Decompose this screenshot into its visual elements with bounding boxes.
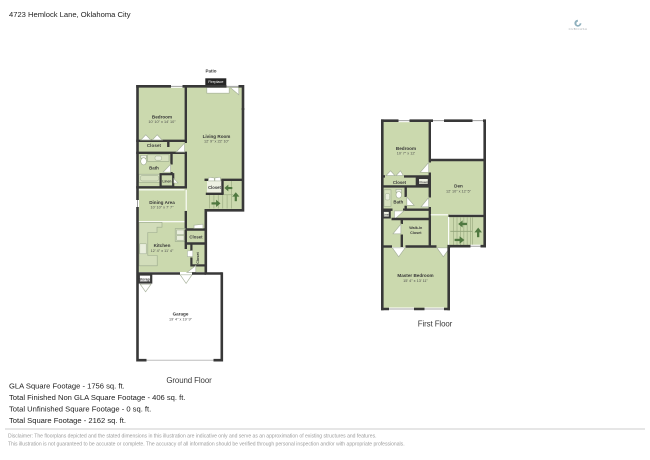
svg-text:Total Finished Non GLA Square: Total Finished Non GLA Square Footage - … bbox=[9, 393, 185, 402]
svg-text:Closet: Closet bbox=[196, 251, 200, 263]
svg-text:Bedroom: Bedroom bbox=[396, 146, 416, 151]
svg-text:Kitchen: Kitchen bbox=[154, 243, 171, 248]
svg-text:Bath: Bath bbox=[149, 166, 159, 171]
svg-text:Disclaimer: The floorplans dep: Disclaimer: The floorplans depicted and … bbox=[8, 434, 377, 440]
svg-text:10' 7" x 12': 10' 7" x 12' bbox=[397, 152, 416, 156]
svg-text:Total Unfinished Square Footag: Total Unfinished Square Footage - 0 sq. … bbox=[9, 405, 151, 414]
svg-text:Bedroom: Bedroom bbox=[152, 114, 172, 119]
svg-text:Living Room: Living Room bbox=[203, 134, 231, 139]
svg-text:Master Bedroom: Master Bedroom bbox=[397, 273, 433, 278]
svg-text:Storage: Storage bbox=[139, 278, 151, 282]
svg-text:Closet: Closet bbox=[147, 143, 162, 148]
svg-text:Den: Den bbox=[454, 184, 463, 189]
svg-text:10' 10" x 7' 7": 10' 10" x 7' 7" bbox=[151, 206, 175, 210]
svg-text:Closet: Closet bbox=[393, 180, 407, 185]
svg-text:First Floor: First Floor bbox=[418, 320, 453, 329]
svg-text:12' 9" x 22' 10": 12' 9" x 22' 10" bbox=[204, 140, 230, 144]
svg-text:12' 10" x 12' 5": 12' 10" x 12' 5" bbox=[446, 189, 472, 193]
svg-text:GLA Square Footage - 1756 sq.: GLA Square Footage - 1756 sq. ft. bbox=[9, 381, 125, 390]
svg-text:Total Square Footage - 2162 sq: Total Square Footage - 2162 sq. ft. bbox=[9, 416, 126, 425]
svg-text:Fireplace: Fireplace bbox=[208, 80, 223, 84]
svg-text:Patio: Patio bbox=[205, 69, 216, 74]
svg-text:Closet: Closet bbox=[189, 234, 203, 239]
svg-text:This illustration is not guara: This illustration is not guaranteed to b… bbox=[8, 442, 405, 448]
svg-text:Bath: Bath bbox=[393, 199, 403, 204]
svg-text:4723 Hemlock Lane, Oklahoma Ci: 4723 Hemlock Lane, Oklahoma City bbox=[9, 10, 131, 19]
svg-text:Ground Floor: Ground Floor bbox=[166, 376, 212, 385]
svg-text:Linen: Linen bbox=[162, 180, 171, 184]
svg-text:Garage: Garage bbox=[173, 312, 189, 317]
svg-text:10' 10" x 14' 10": 10' 10" x 14' 10" bbox=[148, 120, 176, 124]
svg-text:Closet: Closet bbox=[410, 231, 422, 235]
svg-text:19' 4" x 19' 9": 19' 4" x 19' 9" bbox=[169, 317, 193, 321]
svg-text:Linen: Linen bbox=[383, 213, 390, 216]
svg-text:Walk-In: Walk-In bbox=[409, 226, 423, 230]
svg-text:Closet: Closet bbox=[208, 185, 221, 190]
svg-text:Closet: Closet bbox=[419, 180, 427, 184]
svg-text:Dining Area: Dining Area bbox=[149, 200, 175, 205]
svg-text:15' 4" x 13' 11": 15' 4" x 13' 11" bbox=[403, 279, 428, 283]
svg-text:12' 4" x 11' 4": 12' 4" x 11' 4" bbox=[151, 249, 174, 253]
svg-text:CUBICASA: CUBICASA bbox=[569, 27, 588, 31]
